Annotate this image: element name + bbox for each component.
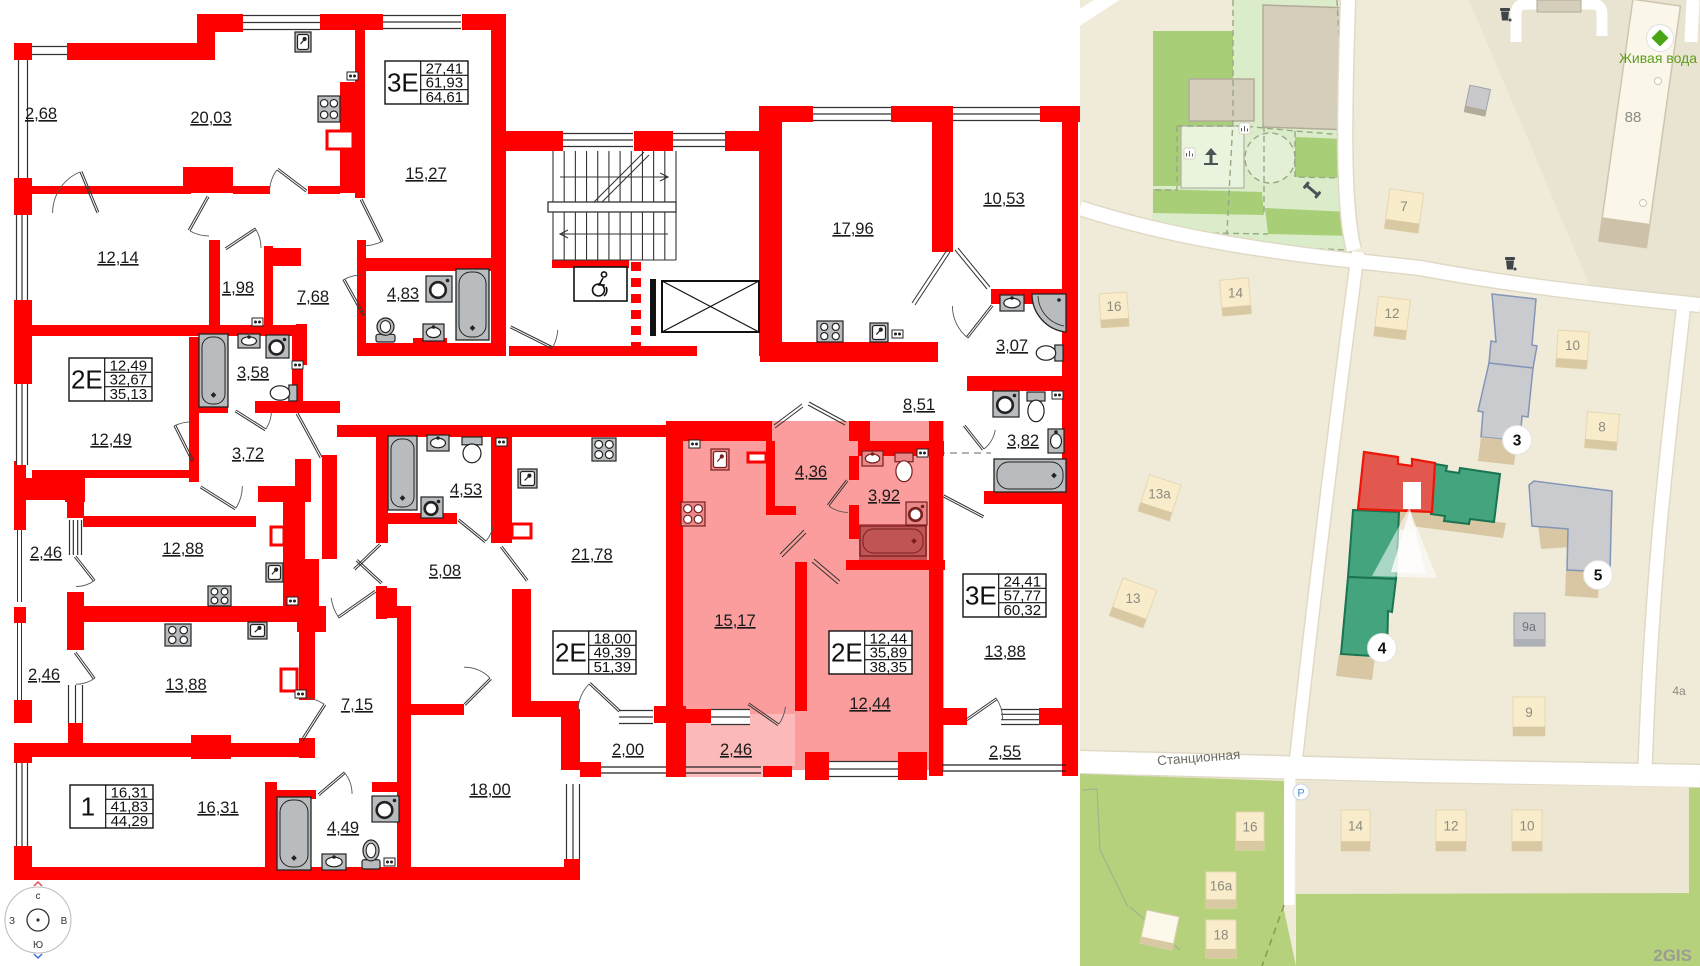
svg-text:20,03: 20,03 [190, 109, 231, 127]
svg-text:38,35: 38,35 [870, 659, 908, 676]
svg-text:2E: 2E [71, 365, 103, 395]
svg-text:2GIS: 2GIS [1653, 946, 1692, 965]
svg-text:3,07: 3,07 [996, 337, 1028, 355]
svg-text:14: 14 [1228, 286, 1244, 301]
svg-text:18,00: 18,00 [469, 781, 510, 799]
svg-text:3,72: 3,72 [232, 445, 264, 463]
svg-text:7,15: 7,15 [341, 696, 373, 714]
svg-text:13,88: 13,88 [984, 643, 1025, 661]
svg-text:13: 13 [1125, 591, 1140, 606]
svg-text:16: 16 [1242, 819, 1257, 834]
svg-text:15,27: 15,27 [405, 165, 446, 183]
svg-text:12,88: 12,88 [162, 540, 203, 558]
svg-text:51,39: 51,39 [594, 659, 632, 676]
svg-text:10,53: 10,53 [983, 190, 1024, 208]
svg-text:9a: 9a [1522, 620, 1536, 634]
svg-text:12,49: 12,49 [90, 431, 131, 449]
svg-text:3,92: 3,92 [868, 487, 900, 505]
svg-text:35,13: 35,13 [110, 386, 148, 403]
svg-text:3: 3 [1513, 433, 1522, 450]
svg-text:Живая вода: Живая вода [1619, 50, 1697, 66]
svg-text:4,53: 4,53 [450, 481, 482, 499]
svg-text:5,08: 5,08 [429, 562, 461, 580]
svg-text:44,29: 44,29 [111, 813, 149, 830]
svg-text:Ю: Ю [33, 940, 43, 951]
svg-text:1,98: 1,98 [222, 279, 254, 297]
svg-text:4,36: 4,36 [795, 463, 827, 481]
svg-text:7: 7 [1400, 199, 1408, 214]
svg-text:9: 9 [1525, 705, 1533, 720]
svg-text:7,68: 7,68 [297, 288, 329, 306]
svg-text:2,55: 2,55 [989, 743, 1021, 761]
svg-text:12,14: 12,14 [97, 249, 138, 267]
svg-text:10: 10 [1519, 819, 1534, 834]
svg-text:13a: 13a [1148, 486, 1171, 501]
svg-text:17,96: 17,96 [832, 220, 873, 238]
svg-text:15,17: 15,17 [714, 612, 755, 630]
svg-text:2,46: 2,46 [30, 544, 62, 562]
svg-text:10: 10 [1565, 338, 1580, 353]
svg-text:2,68: 2,68 [25, 105, 57, 123]
svg-text:12,44: 12,44 [849, 695, 890, 713]
svg-text:2E: 2E [555, 638, 587, 668]
svg-text:4a: 4a [1672, 684, 1686, 698]
svg-text:3,58: 3,58 [237, 364, 269, 382]
svg-text:5: 5 [1594, 568, 1603, 585]
svg-text:2E: 2E [831, 638, 863, 668]
svg-text:14: 14 [1348, 819, 1364, 834]
svg-text:З: З [9, 916, 15, 927]
svg-text:12: 12 [1384, 306, 1399, 321]
svg-text:88: 88 [1625, 109, 1642, 126]
svg-text:P: P [1297, 788, 1304, 800]
svg-text:60,32: 60,32 [1004, 602, 1042, 619]
svg-text:4: 4 [1378, 641, 1387, 658]
svg-text:16: 16 [1106, 299, 1121, 314]
svg-text:13,88: 13,88 [165, 676, 206, 694]
svg-text:2,00: 2,00 [612, 741, 644, 759]
svg-text:8: 8 [1598, 420, 1606, 435]
svg-text:16a: 16a [1210, 879, 1233, 894]
svg-text:2,46: 2,46 [28, 666, 60, 684]
svg-text:21,78: 21,78 [571, 546, 612, 564]
svg-text:с: с [36, 891, 41, 902]
svg-text:4,49: 4,49 [327, 819, 359, 837]
svg-text:3E: 3E [965, 581, 997, 611]
svg-text:3,82: 3,82 [1007, 432, 1039, 450]
svg-text:1: 1 [81, 792, 95, 822]
svg-text:2,46: 2,46 [720, 741, 752, 759]
svg-text:4,83: 4,83 [387, 285, 419, 303]
svg-text:3E: 3E [387, 68, 419, 98]
svg-text:В: В [61, 916, 68, 927]
svg-text:8,51: 8,51 [903, 396, 935, 414]
svg-text:64,61: 64,61 [426, 89, 464, 106]
svg-text:12: 12 [1443, 819, 1458, 834]
svg-text:16,31: 16,31 [197, 799, 238, 817]
svg-text:18: 18 [1213, 927, 1228, 942]
